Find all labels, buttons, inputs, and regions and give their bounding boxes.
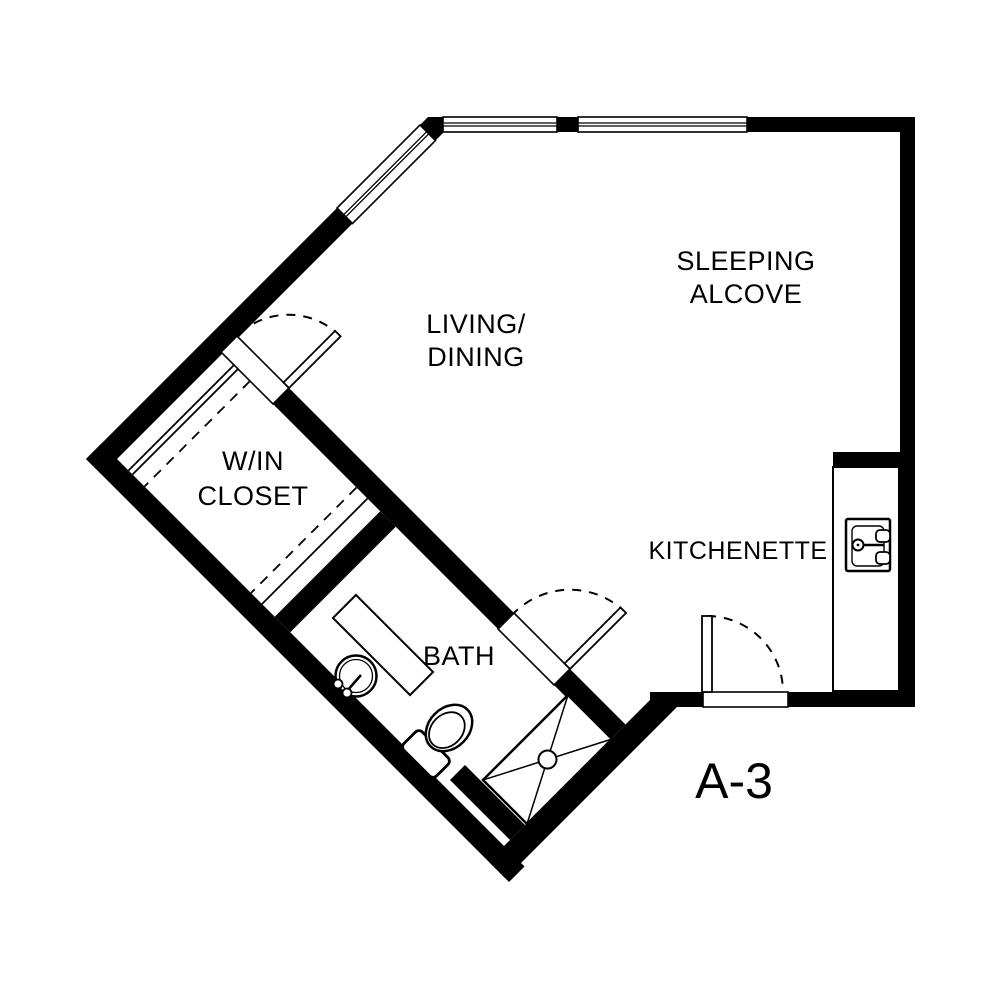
faucet-handle (876, 530, 890, 542)
faucet-handle (343, 689, 352, 698)
sleeping-alcove-label-line2: ALCOVE (690, 279, 803, 309)
window-angled (337, 125, 436, 224)
kitchen-counter (833, 467, 899, 691)
door-swing-arc (514, 590, 626, 613)
right-wall (900, 117, 915, 707)
unit-number-label: A-3 (695, 753, 773, 809)
kitchenette-label: KITCHENETTE (648, 537, 827, 565)
door-leaf (565, 608, 627, 670)
living-dining-label-line1: LIVING/ (426, 309, 526, 339)
closet-bath-partition-wall (275, 511, 396, 632)
kitchen-sink (846, 519, 890, 571)
window-frame (337, 125, 436, 224)
door-swing-arc (707, 616, 783, 692)
bath-label: BATH (423, 641, 495, 671)
window-frame (443, 117, 557, 132)
faucet-handle (334, 680, 343, 689)
sleeping-alcove-label-line1: SLEEPING (676, 246, 815, 276)
window-top-right (578, 117, 747, 132)
door-leaf (702, 616, 712, 692)
floor-plan-page: SLEEPING ALCOVE LIVING/ DINING W/IN CLOS… (0, 0, 1000, 1000)
window-frame (578, 117, 747, 132)
walk-in-closet-label-line1: W/IN (222, 446, 284, 476)
door-threshold (498, 613, 570, 685)
window-glass-line (344, 132, 427, 215)
sink-bowl-outer (336, 656, 377, 697)
shower-drain (539, 751, 557, 769)
entry-door (702, 616, 788, 707)
door-threshold (703, 692, 788, 707)
door-leaf (284, 331, 341, 388)
window-glass-line (346, 134, 429, 217)
counter-end-wall-stub (833, 452, 915, 467)
faucet-dot (857, 544, 860, 547)
living-dining-label-line2: DINING (427, 342, 525, 372)
faucet-handle (876, 552, 890, 564)
bath-door (498, 590, 626, 685)
windows (337, 117, 747, 224)
floor-plan-svg: SLEEPING ALCOVE LIVING/ DINING W/IN CLOS… (0, 0, 1000, 1000)
window-top-left (443, 117, 557, 132)
room-labels: SLEEPING ALCOVE LIVING/ DINING W/IN CLOS… (197, 246, 827, 809)
walk-in-closet-label-line2: CLOSET (197, 481, 308, 511)
door-threshold (221, 336, 289, 404)
